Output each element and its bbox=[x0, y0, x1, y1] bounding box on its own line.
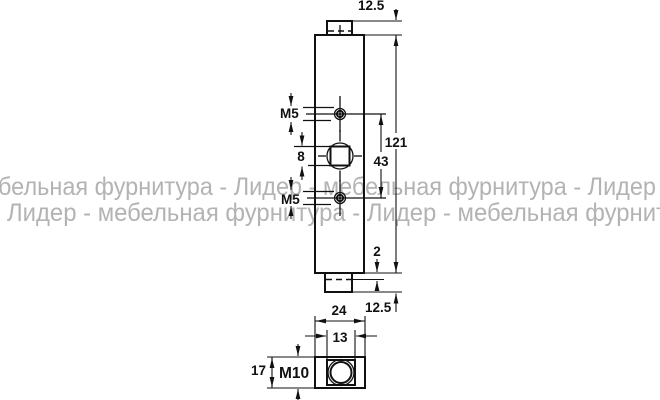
watermark-line1: бельная фурнитура - Лидер - мебельная фу… bbox=[0, 173, 656, 201]
body-outline bbox=[315, 35, 364, 273]
bottom-tab bbox=[325, 273, 352, 292]
dim-top-tab-length: 12.5 bbox=[358, 0, 385, 13]
nut-thread-hole-circle bbox=[331, 362, 352, 383]
technical-drawing-page: бельная фурнитура - Лидер - мебельная фу… bbox=[0, 0, 660, 400]
dim-housing-height: 17 bbox=[251, 363, 266, 378]
nut-thread-crest-circle bbox=[328, 360, 354, 386]
dim-housing-width: 24 bbox=[331, 303, 347, 318]
label-bottom-thread: M5 bbox=[281, 192, 300, 207]
watermark-line2: Лидер - мебельная фурнитура - Лидер - ме… bbox=[7, 199, 660, 227]
dim-square-hole: 8 bbox=[297, 149, 305, 164]
watermark: бельная фурнитура - Лидер - мебельная фу… bbox=[0, 173, 660, 227]
bottom-view bbox=[315, 357, 365, 388]
technical-drawing: бельная фурнитура - Лидер - мебельная фу… bbox=[0, 0, 660, 400]
dim-total-height: 121 bbox=[385, 135, 408, 150]
dim-shoulder-gap: 2 bbox=[373, 244, 381, 259]
dim-neck-width: 13 bbox=[332, 330, 348, 345]
label-top-thread: M5 bbox=[280, 106, 299, 121]
dim-hole-spacing: 43 bbox=[373, 154, 389, 169]
label-nut-thread: M10 bbox=[279, 365, 309, 382]
dim-bottom-tab-length: 12.5 bbox=[365, 300, 392, 315]
